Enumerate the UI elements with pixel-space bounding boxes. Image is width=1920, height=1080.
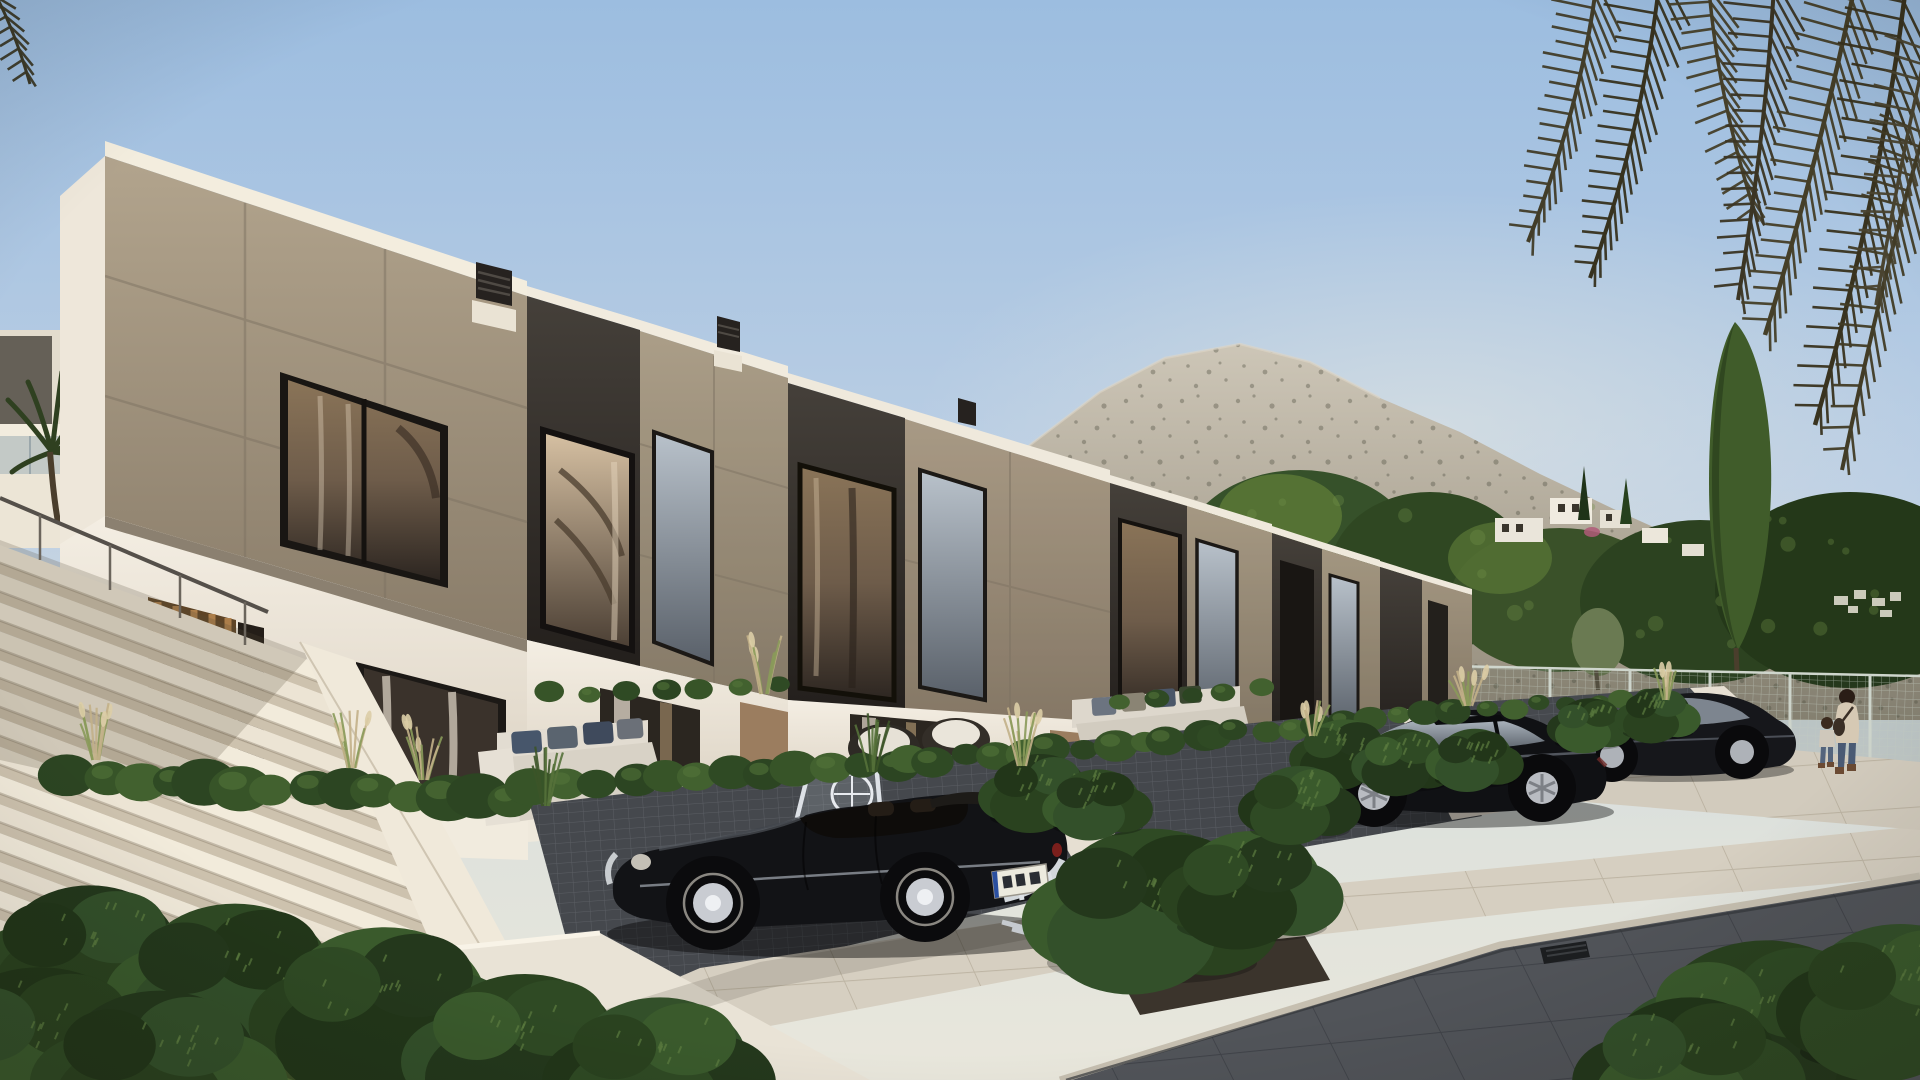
vignette <box>0 0 1920 1080</box>
scene <box>0 0 1920 1080</box>
render-image <box>0 0 1920 1080</box>
